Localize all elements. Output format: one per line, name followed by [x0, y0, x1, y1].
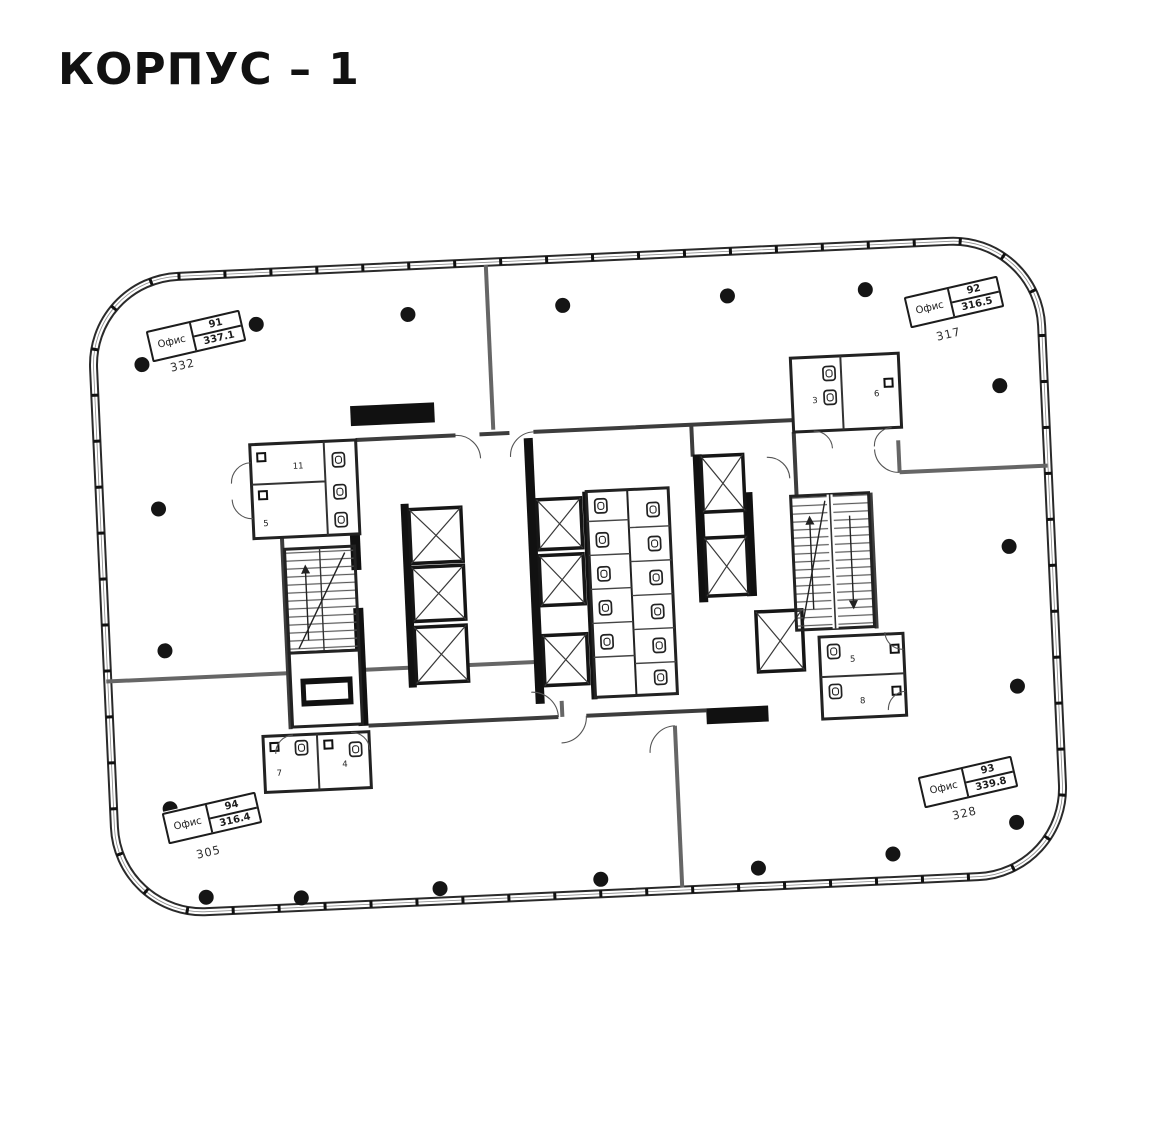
elevator-shaft — [411, 565, 465, 621]
room-number: 8 — [860, 696, 866, 706]
elevator-shaft — [409, 507, 463, 563]
room-number: 4 — [342, 760, 348, 770]
floor-plan-page: КОРПУС – 1 — [0, 0, 1157, 1136]
floor-plan-svg: 11 5 3 6 7 — [0, 0, 1157, 1136]
elevator-shaft — [543, 634, 589, 686]
stairwell-left — [284, 546, 362, 727]
room-number: 11 — [293, 461, 304, 471]
room-number: 3 — [812, 396, 818, 406]
toilet-annex-bottom-left: 7 4 — [263, 732, 371, 793]
room-number: 6 — [874, 389, 880, 399]
stairwell-right — [791, 493, 875, 630]
elevator-shaft — [537, 498, 583, 550]
elevator-shaft — [701, 454, 745, 512]
elevator-shaft — [704, 536, 749, 596]
room-number: 7 — [276, 769, 282, 779]
elevator-shaft — [539, 554, 585, 606]
toilet-annex-top-right: 3 6 — [790, 353, 901, 432]
toilet-annex-top-left: 11 5 — [250, 440, 360, 539]
room-number: 5 — [850, 655, 856, 665]
elevator-shaft — [414, 625, 468, 683]
wc-block — [586, 488, 677, 698]
room-number: 5 — [263, 519, 269, 529]
